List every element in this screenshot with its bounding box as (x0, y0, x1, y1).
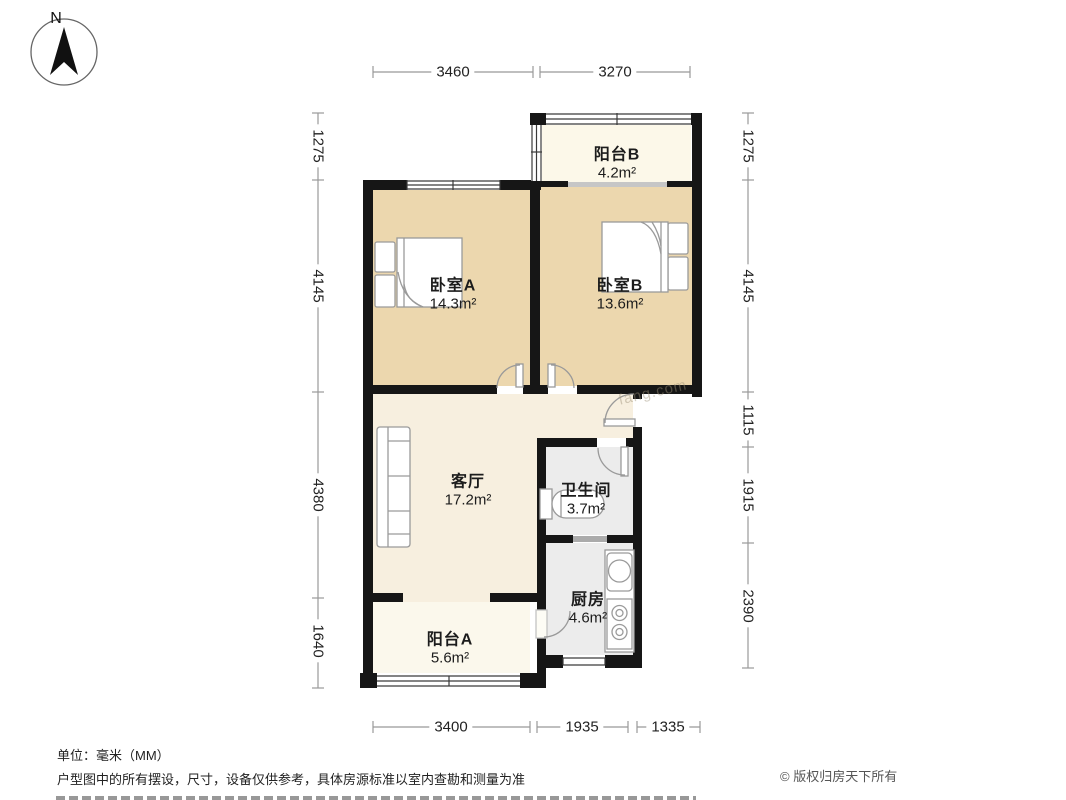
room-label-kitchen: 厨房 4.6m² (569, 590, 607, 627)
room-label-balcony-b: 阳台B 4.2m² (594, 145, 641, 182)
balcony-a-window (377, 675, 520, 687)
compass-needle-icon (50, 27, 78, 75)
clipped-text-line (56, 796, 696, 800)
dim-left-4: 1640 (310, 619, 327, 662)
sofa (377, 427, 410, 547)
room-name: 阳台A (427, 630, 474, 649)
dim-bottom-2: 1935 (560, 719, 603, 736)
room-area: 5.6m² (427, 650, 474, 668)
room-area: 3.7m² (560, 501, 611, 519)
kitchen-counter (605, 550, 634, 652)
dim-bottom-1: 3400 (429, 719, 472, 736)
dim-left-3: 4380 (310, 473, 327, 516)
dim-top-2: 3270 (593, 64, 636, 81)
dim-right-3: 1115 (740, 399, 757, 440)
balcony-b-top-window (546, 113, 691, 125)
dim-top-1: 3460 (431, 64, 474, 81)
room-area: 17.2m² (445, 492, 492, 510)
room-name: 客厅 (445, 472, 492, 491)
bedroom-a-window (407, 180, 500, 190)
room-label-balcony-a: 阳台A 5.6m² (427, 630, 474, 667)
floorplan-drawing (0, 0, 1066, 800)
room-label-living-room: 客厅 17.2m² (445, 472, 492, 509)
room-name: 阳台B (594, 145, 641, 164)
room-name: 卧室B (597, 276, 644, 295)
room-label-bathroom: 卫生间 3.7m² (560, 481, 611, 518)
footer-copyright: © 版权归房天下所有 (780, 766, 897, 785)
compass-north-label: N (50, 10, 62, 28)
room-label-bedroom-a: 卧室A 14.3m² (430, 276, 477, 313)
room-name: 卧室A (430, 276, 477, 295)
floorplan-canvas: N 阳台B 4.2m² 卧室A 14.3m² 卧室B 13.6m² 客厅 17.… (0, 0, 1066, 800)
room-name: 卫生间 (560, 481, 611, 500)
balcony-opening-floor (403, 593, 490, 602)
kitchen-window (563, 656, 605, 667)
dim-right-4: 1915 (740, 473, 757, 516)
dim-left-1: 1275 (310, 124, 327, 167)
room-name: 厨房 (569, 590, 607, 609)
room-area: 14.3m² (430, 296, 477, 314)
room-area: 4.6m² (569, 610, 607, 628)
partition-wall (573, 536, 607, 542)
room-label-bedroom-b: 卧室B 13.6m² (597, 276, 644, 313)
footer-unit-note: 单位：毫米（MM） (57, 745, 170, 764)
footer-disclaimer: 户型图中的所有摆设，尺寸，设备仅供参考，具体房源标准以室内查勘和测量为准 (57, 769, 525, 788)
room-area: 4.2m² (594, 165, 641, 183)
dim-right-2: 4145 (740, 264, 757, 307)
dim-left-2: 4145 (310, 264, 327, 307)
dim-right-5: 2390 (740, 584, 757, 627)
balcony-b-side-window (531, 125, 542, 181)
sink (609, 560, 631, 582)
balcony-b-sill (568, 182, 667, 187)
dim-right-1: 1275 (740, 124, 757, 167)
room-area: 13.6m² (597, 296, 644, 314)
compass (31, 19, 97, 85)
dim-bottom-3: 1335 (646, 719, 689, 736)
